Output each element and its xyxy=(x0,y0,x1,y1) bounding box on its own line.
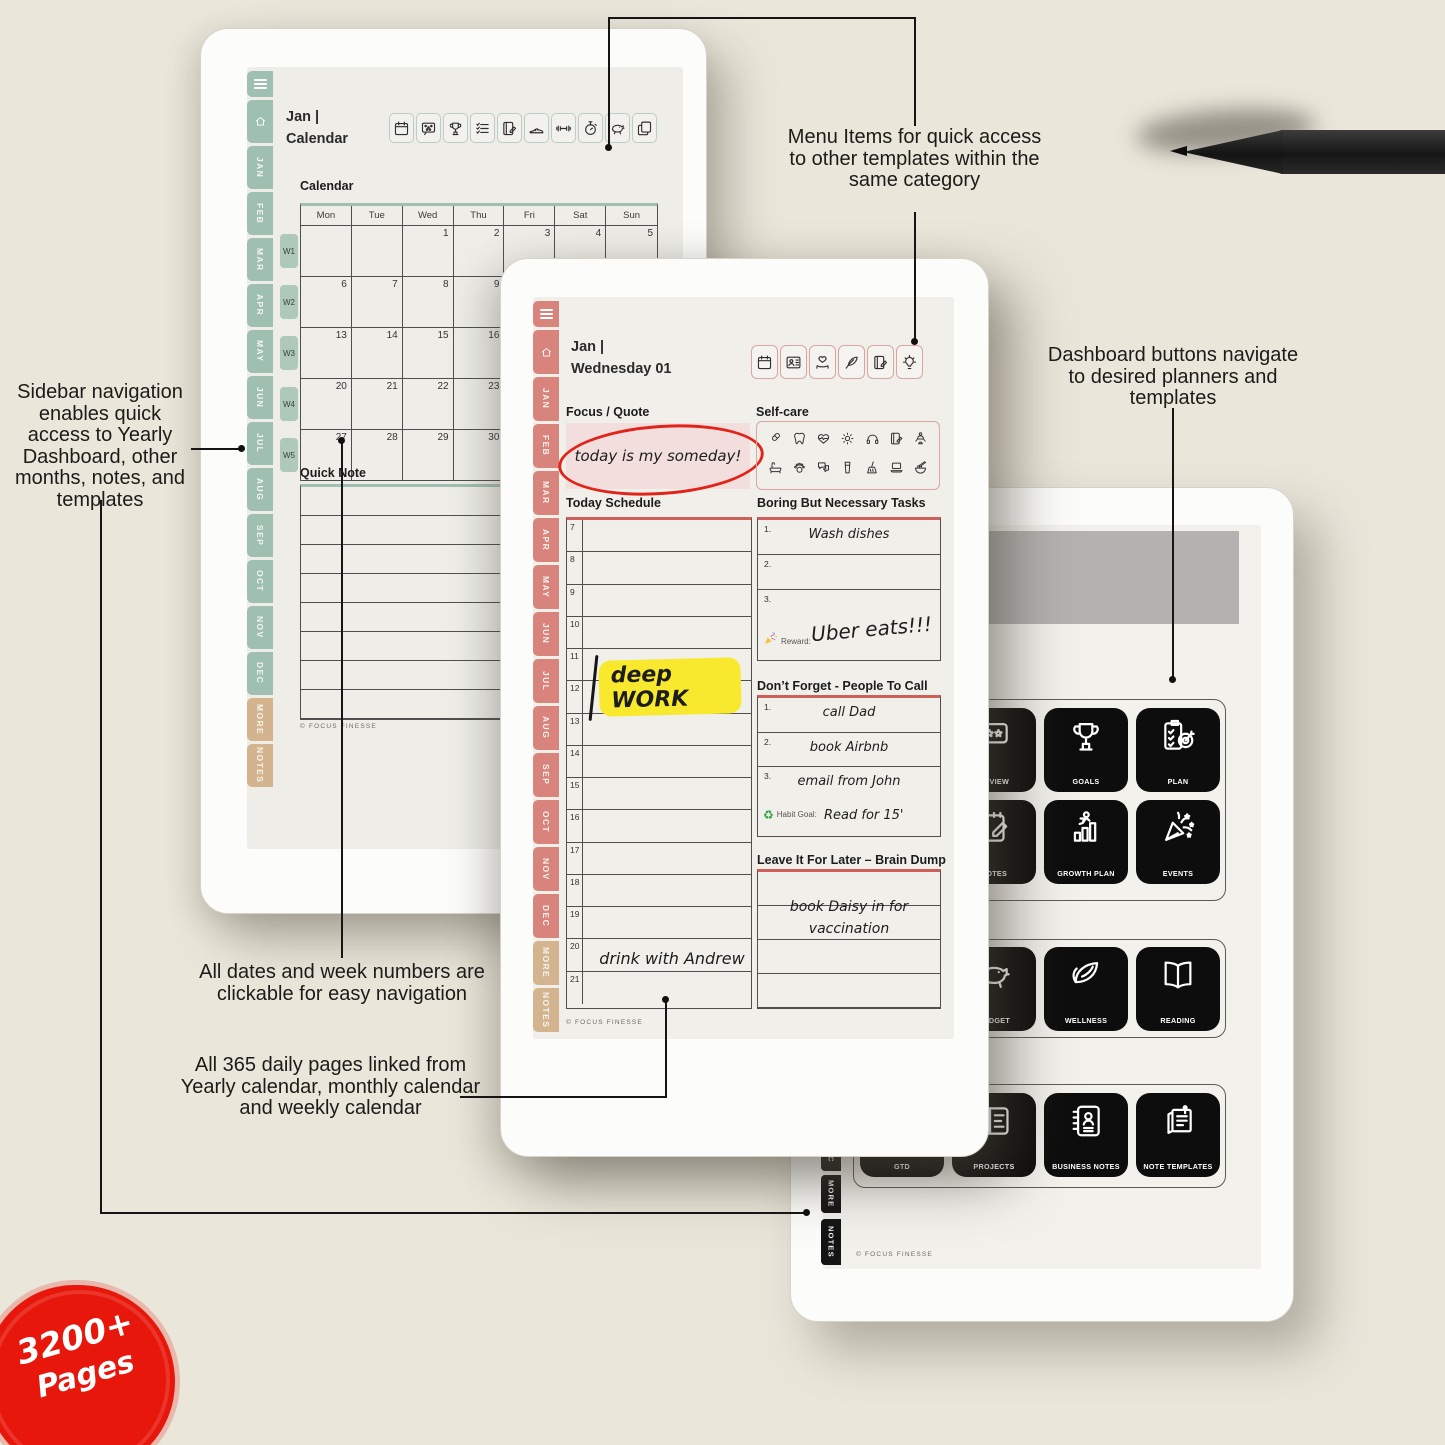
chat-icon xyxy=(816,460,831,475)
menu-item-dumbbell-icon[interactable] xyxy=(551,113,576,143)
monthly-tab-jun[interactable]: JUN xyxy=(247,376,273,419)
focus-quote-box[interactable]: today is my someday! xyxy=(566,423,750,489)
annotation-daily-pages: All 365 daily pages linked from Yearly c… xyxy=(178,1055,483,1120)
call-row[interactable]: 1.call Dad xyxy=(758,698,940,733)
capsule-icon xyxy=(768,431,783,446)
monthly-tab-notes[interactable]: NOTES xyxy=(247,744,273,787)
noodles-icon xyxy=(913,460,928,475)
monthly-tab-sep[interactable]: SEP xyxy=(247,514,273,557)
habit-goal-handwriting: Read for 15' xyxy=(824,808,940,823)
sneaker-icon xyxy=(528,120,545,137)
deep-work-handwriting: deep WORK xyxy=(610,660,741,713)
daily-tab-may[interactable]: MAY xyxy=(533,565,559,609)
schedule-row-17[interactable]: 17 xyxy=(567,843,751,875)
brain-dump-label: Leave It For Later – Brain Dump xyxy=(757,853,946,867)
monthly-sidebar: JANFEBMARAPRMAYJUNJULAUGSEPOCTNOVDECMORE… xyxy=(247,71,273,787)
focus-quote-label: Focus / Quote xyxy=(566,405,649,419)
monthly-tab-aug[interactable]: AUG xyxy=(247,468,273,511)
monthly-tab-nov[interactable]: NOV xyxy=(247,606,273,649)
sidebar-tab-notes[interactable]: NOTES xyxy=(821,1219,841,1265)
journal-icon xyxy=(889,431,904,446)
home-icon xyxy=(254,115,267,128)
calendar-icon xyxy=(393,120,410,137)
party-popper-icon xyxy=(763,631,778,646)
calendar-date-cell[interactable]: 13 xyxy=(301,328,352,378)
dashboard-button-reading[interactable]: READING xyxy=(1136,947,1220,1031)
calendar-date-cell[interactable]: 23 xyxy=(454,379,505,429)
marketing-canvas: JANFEBMARAPRMAYJUNJULAUGSEPOCTNOVDECMORE… xyxy=(0,0,1445,1445)
growth-icon xyxy=(1067,809,1105,847)
stylus-pen xyxy=(1170,128,1445,178)
daily-tab-notes[interactable]: NOTES xyxy=(533,988,559,1032)
daily-tab-dec[interactable]: DEC xyxy=(533,894,559,938)
menu-item-sneaker-icon[interactable] xyxy=(524,113,549,143)
menu-item-calendar-icon[interactable] xyxy=(389,113,414,143)
week-number-tab[interactable]: W4 xyxy=(280,387,298,421)
schedule-row-21[interactable]: 21 xyxy=(567,972,751,1004)
task-row[interactable]: 1.Wash dishes xyxy=(758,520,940,555)
calendar-date-cell[interactable] xyxy=(301,226,352,276)
monthly-tab-oct[interactable]: OCT xyxy=(247,560,273,603)
tasks-label: Boring But Necessary Tasks xyxy=(757,496,926,510)
tablet-daily-page: JANFEBMARAPRMAYJUNJULAUGSEPOCTNOVDECMORE… xyxy=(500,258,989,1157)
calendar-date-cell[interactable]: 22 xyxy=(403,379,454,429)
selfcare-capsule-icon[interactable] xyxy=(768,431,783,451)
selfcare-heart-pulse-icon[interactable] xyxy=(816,431,831,451)
party-popper-icon xyxy=(763,631,778,651)
deep-work-highlight: deep WORK xyxy=(598,657,741,717)
schedule-row-13[interactable]: 13 xyxy=(567,714,751,746)
tasks-box: 1.Wash dishes2.3. Reward: Uber eats!!! xyxy=(757,517,941,661)
selfcare-journal-icon[interactable] xyxy=(889,431,904,451)
headphones-icon xyxy=(865,431,880,446)
day-header: Sun xyxy=(606,206,657,225)
daily-tab-jun[interactable]: JUN xyxy=(533,612,559,656)
calendar-section-label: Calendar xyxy=(300,179,354,193)
people-to-call-label: Don’t Forget - People To Call xyxy=(757,679,928,693)
schedule-row-8[interactable]: 8 xyxy=(567,552,751,584)
meditation-icon xyxy=(913,431,928,446)
selfcare-broom-icon[interactable] xyxy=(865,460,880,480)
daily-screen: JANFEBMARAPRMAYJUNJULAUGSEPOCTNOVDECMORE… xyxy=(533,297,954,1039)
feather-icon xyxy=(843,354,860,371)
self-care-tracker xyxy=(756,421,940,490)
contacts-icon xyxy=(785,354,802,371)
dashboard-button-note-templates[interactable]: NOTE TEMPLATES xyxy=(1136,1093,1220,1177)
calendar-date-cell[interactable]: 14 xyxy=(352,328,403,378)
dashboard-button-goals[interactable]: GOALS xyxy=(1044,708,1128,792)
monthly-tab-dec[interactable]: DEC xyxy=(247,652,273,695)
call-row[interactable]: 3.email from John xyxy=(758,767,940,802)
day-header: Fri xyxy=(504,206,555,225)
selfcare-bathtub-icon[interactable] xyxy=(768,460,783,480)
dashboard-button-business-notes[interactable]: BUSINESS NOTES xyxy=(1044,1093,1128,1177)
monthly-page-title: Jan | Calendar xyxy=(286,107,348,151)
menu-item-journal-icon[interactable] xyxy=(497,113,522,143)
menu-item-heart-hand-icon[interactable] xyxy=(809,345,836,379)
monthly-tab-jan[interactable]: JAN xyxy=(247,146,273,189)
menu-item-checklist-icon[interactable] xyxy=(470,113,495,143)
schedule-row-15[interactable]: 15 xyxy=(567,778,751,810)
menu-item-idea-bulb-icon[interactable] xyxy=(896,345,923,379)
schedule-row-16[interactable]: 16 xyxy=(567,810,751,842)
water-glass-icon xyxy=(840,460,855,475)
week-number-tab[interactable]: W1 xyxy=(280,234,298,268)
week-number-tab[interactable]: W5 xyxy=(280,438,298,472)
month-label: Jan | xyxy=(286,107,348,129)
menu-item-templates-icon[interactable] xyxy=(632,113,657,143)
menu-item-trophy-icon[interactable] xyxy=(443,113,468,143)
menu-item-calendar-icon[interactable] xyxy=(751,345,778,379)
self-care-label: Self-care xyxy=(756,405,809,419)
calendar-date-cell[interactable]: 2 xyxy=(454,226,505,276)
calendar-date-cell[interactable]: 8 xyxy=(403,277,454,327)
templates-icon xyxy=(636,120,653,137)
monthly-tab-feb[interactable]: FEB xyxy=(247,192,273,235)
selfcare-noodles-icon[interactable] xyxy=(913,460,928,480)
monthly-tab-jul[interactable]: JUL xyxy=(247,422,273,465)
evening-entry-handwriting: drink with Andrew xyxy=(593,949,751,968)
brain-dump-handwriting: book Daisy in for vaccination xyxy=(758,896,940,941)
day-header: Tue xyxy=(352,206,403,225)
daily-tab-feb[interactable]: FEB xyxy=(533,424,559,468)
daily-tab-more[interactable]: MORE xyxy=(533,941,559,985)
dumbbell-icon xyxy=(555,120,572,137)
calendar-date-cell[interactable]: 1 xyxy=(403,226,454,276)
trophy-icon xyxy=(1067,717,1105,755)
selfcare-water-glass-icon[interactable] xyxy=(840,460,855,480)
daily-sidebar: JANFEBMARAPRMAYJUNJULAUGSEPOCTNOVDECMORE… xyxy=(533,301,559,1032)
annotation-clickable-dates: All dates and week numbers are clickable… xyxy=(196,962,488,1005)
schedule-row-10[interactable]: 10 xyxy=(567,617,751,649)
daily-tab-nov[interactable]: NOV xyxy=(533,847,559,891)
reading-icon xyxy=(1159,956,1197,994)
brand-footer: © FOCUS FINESSE xyxy=(856,1251,933,1258)
habit-goal-row[interactable]: ♻ Habit Goal: Read for 15' xyxy=(758,802,940,837)
journal-icon xyxy=(872,354,889,371)
daily-tab-aug[interactable]: AUG xyxy=(533,706,559,750)
month-label: Jan | xyxy=(571,337,671,359)
selfcare-laptop-icon[interactable] xyxy=(889,460,904,480)
selfcare-meditation-icon[interactable] xyxy=(913,431,928,451)
calendar-date-cell[interactable]: 20 xyxy=(301,379,352,429)
schedule-row-9[interactable]: 9 xyxy=(567,585,751,617)
calendar-date-cell[interactable]: 7 xyxy=(352,277,403,327)
day-header: Wed xyxy=(403,206,454,225)
daily-tab-apr[interactable]: APR xyxy=(533,518,559,562)
brand-footer: © FOCUS FINESSE xyxy=(300,723,377,730)
schedule-row-19[interactable]: 19 xyxy=(567,907,751,939)
habit-goal-label: Habit Goal: xyxy=(777,810,817,819)
view-label: Calendar xyxy=(286,129,348,151)
journal-icon xyxy=(501,120,518,137)
dashboard-button-growth-plan[interactable]: GROWTH PLAN xyxy=(1044,800,1128,884)
dashboard-button-wellness[interactable]: WELLNESS xyxy=(1044,947,1128,1031)
monthly-menu-tab[interactable] xyxy=(247,71,273,97)
today-schedule-table: 789101112131415161718192021 xyxy=(566,517,752,1009)
sun-icon xyxy=(840,431,855,446)
calendar-date-cell[interactable]: 15 xyxy=(403,328,454,378)
selfcare-tooth-icon[interactable] xyxy=(792,431,807,451)
week-number-tab[interactable]: W3 xyxy=(280,336,298,370)
events-icon xyxy=(1159,809,1197,847)
schedule-row-7[interactable]: 7 xyxy=(567,520,751,552)
monthly-home-tab[interactable] xyxy=(247,100,273,143)
dashboard-button-events[interactable]: EVENTS xyxy=(1136,800,1220,884)
sidebar-tab-more[interactable]: MORE xyxy=(821,1175,841,1213)
broom-icon xyxy=(865,460,880,475)
day-header: Sat xyxy=(555,206,606,225)
piggy-bank-icon xyxy=(609,120,626,137)
menu-item-feather-icon[interactable] xyxy=(838,345,865,379)
daily-tab-jan[interactable]: JAN xyxy=(533,377,559,421)
day-header: Mon xyxy=(301,206,352,225)
annotation-sidebar-nav: Sidebar navigation enables quick access … xyxy=(5,382,195,512)
menu-item-habit-tracker-icon[interactable] xyxy=(416,113,441,143)
paw-icon xyxy=(792,460,807,475)
daily-tab-oct[interactable]: OCT xyxy=(533,800,559,844)
annotation-menu-items: Menu Items for quick access to other tem… xyxy=(782,127,1047,192)
daily-tab-sep[interactable]: SEP xyxy=(533,753,559,797)
selfcare-headphones-icon[interactable] xyxy=(865,431,880,451)
calendar-date-cell[interactable]: 30 xyxy=(454,430,505,480)
calendar-date-cell[interactable]: 6 xyxy=(301,277,352,327)
monthly-tab-apr[interactable]: APR xyxy=(247,284,273,327)
calendar-icon xyxy=(756,354,773,371)
call-row[interactable]: 2.book Airbnb xyxy=(758,733,940,768)
dashboard-button-plan[interactable]: PLAN xyxy=(1136,708,1220,792)
wellness-icon xyxy=(1067,956,1105,994)
selfcare-chat-icon[interactable] xyxy=(816,460,831,480)
schedule-row-14[interactable]: 14 xyxy=(567,746,751,778)
laptop-icon xyxy=(889,460,904,475)
day-header: Thu xyxy=(454,206,505,225)
calendar-date-cell[interactable]: 21 xyxy=(352,379,403,429)
calendar-date-cell[interactable]: 9 xyxy=(454,277,505,327)
timer-icon xyxy=(582,120,599,137)
tooth-icon xyxy=(792,431,807,446)
daily-menu-strip xyxy=(751,345,923,379)
monthly-menu-strip xyxy=(389,113,657,143)
week-number-tab[interactable]: W2 xyxy=(280,285,298,319)
menu-item-journal-icon[interactable] xyxy=(867,345,894,379)
calendar-date-cell[interactable]: 29 xyxy=(403,430,454,480)
people-to-call-box: 1.call Dad2.book Airbnb3.email from John… xyxy=(757,695,941,837)
day-label: Wednesday 01 xyxy=(571,359,671,381)
monthly-tab-more[interactable]: MORE xyxy=(247,698,273,741)
monthly-tab-mar[interactable]: MAR xyxy=(247,238,273,281)
heart-hand-icon xyxy=(814,354,831,371)
monthly-tab-may[interactable]: MAY xyxy=(247,330,273,373)
business-notes-icon xyxy=(1067,1102,1105,1140)
habit-tracker-icon xyxy=(420,120,437,137)
daily-menu-tab[interactable] xyxy=(533,301,559,327)
daily-home-tab[interactable] xyxy=(533,330,559,374)
menu-item-timer-icon[interactable] xyxy=(578,113,603,143)
daily-tab-jul[interactable]: JUL xyxy=(533,659,559,703)
schedule-row-18[interactable]: 18 xyxy=(567,875,751,907)
reward-row[interactable]: Reward: Uber eats!!! xyxy=(758,625,940,660)
marker-ellipse xyxy=(556,418,766,502)
daily-tab-mar[interactable]: MAR xyxy=(533,471,559,515)
calendar-day-headers: MonTueWedThuFriSatSun xyxy=(301,206,657,226)
today-schedule-label: Today Schedule xyxy=(566,496,661,510)
recycle-icon: ♻ xyxy=(763,808,774,822)
annotation-dashboard-buttons: Dashboard buttons navigate to desired pl… xyxy=(1042,345,1304,410)
brand-footer: © FOCUS FINESSE xyxy=(566,1019,643,1026)
plan-icon xyxy=(1159,717,1197,755)
idea-bulb-icon xyxy=(901,354,918,371)
checklist-icon xyxy=(474,120,491,137)
menu-item-contacts-icon[interactable] xyxy=(780,345,807,379)
calendar-date-cell[interactable] xyxy=(352,226,403,276)
pages-count-badge: 3200+ Pages xyxy=(0,1285,175,1445)
quick-note-label: Quick Note xyxy=(300,466,366,480)
heart-pulse-icon xyxy=(816,431,831,446)
calendar-date-cell[interactable]: 16 xyxy=(454,328,505,378)
note-templates-icon xyxy=(1159,1102,1197,1140)
selfcare-paw-icon[interactable] xyxy=(792,460,807,480)
bathtub-icon xyxy=(768,460,783,475)
selfcare-sun-icon[interactable] xyxy=(840,431,855,451)
task-row[interactable]: 2. xyxy=(758,555,940,590)
brain-dump-box[interactable]: book Daisy in for vaccination xyxy=(757,869,941,1009)
daily-page-title: Jan | Wednesday 01 xyxy=(571,337,671,381)
trophy-icon xyxy=(447,120,464,137)
home-icon xyxy=(540,346,553,359)
